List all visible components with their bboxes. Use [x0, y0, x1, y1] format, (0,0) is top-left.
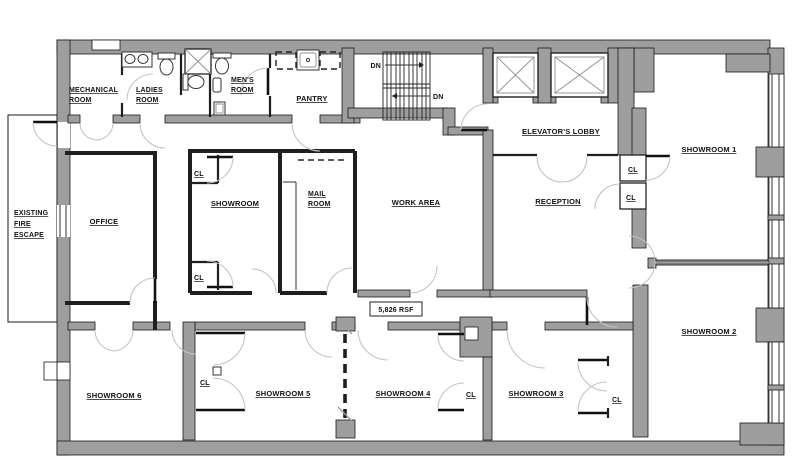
ladies-sink-counter — [122, 52, 152, 67]
workarea-door-arc — [410, 266, 437, 293]
label-mail-1: MAIL — [308, 191, 326, 198]
label-mail-2: ROOM — [308, 201, 331, 208]
label-cl-a: CL — [628, 167, 638, 174]
label-cl-showroom4: CL — [466, 392, 476, 399]
label-showroom6: SHOWROOM 6 — [87, 391, 142, 400]
area-label: 5,826 RSF — [378, 307, 414, 314]
label-cl-showroom-top: CL — [194, 171, 204, 178]
mechanical-door-arc — [80, 123, 97, 140]
label-mechanical-2: ROOM — [69, 97, 92, 104]
label-showroom: SHOWROOM — [211, 199, 259, 208]
label-ladies-1: LADIES — [136, 87, 163, 94]
label-cl-showroom5: CL — [200, 380, 210, 387]
office-door-arc — [130, 278, 155, 303]
closet-b-door-arc — [595, 184, 620, 209]
label-showroom3: SHOWROOM 3 — [509, 389, 564, 398]
closet-a-door-arc — [646, 156, 670, 180]
label-showroom1: SHOWROOM 1 — [682, 145, 737, 154]
label-showroom2: SHOWROOM 2 — [682, 327, 737, 336]
closets — [196, 155, 646, 418]
label-dn-upper: DN — [370, 63, 381, 70]
label-reception: RECEPTION — [535, 197, 581, 206]
label-cl-showroom3: CL — [612, 397, 622, 404]
window-right-upper — [769, 74, 784, 147]
showroom4-door-arc — [358, 330, 388, 360]
stair-arrowhead-upper — [419, 62, 424, 68]
label-dn-lower: DN — [433, 94, 444, 101]
mailroom-counter — [283, 160, 346, 290]
label-mechanical-1: MECHANICAL — [69, 87, 119, 94]
window-left-showroom6 — [44, 362, 70, 380]
pantry-door-arc — [292, 123, 320, 151]
showroom5-door-arc — [305, 330, 332, 357]
elevator-2 — [551, 53, 608, 97]
lobby-door-arc — [461, 104, 487, 130]
label-office: OFFICE — [90, 217, 119, 226]
reception-double-door-arc-right — [562, 157, 587, 182]
window-right-lower — [768, 342, 784, 423]
label-cl-b: CL — [626, 195, 636, 202]
floor-plan: 5,826 RSF MECHANICAL ROOM LADIES ROOM ME… — [0, 0, 807, 463]
window-left-office — [57, 205, 70, 237]
dashed-partition — [338, 320, 352, 421]
janitor-shaft — [185, 49, 211, 74]
stair-arrowhead-lower — [392, 93, 397, 99]
label-work-area: WORK AREA — [392, 198, 441, 207]
fire-escape-enclosure — [8, 115, 57, 322]
label-mens-1: MEN'S — [231, 77, 254, 84]
showroom-door-arc — [252, 269, 276, 293]
mailroom-door-arc — [327, 268, 352, 293]
window-right-middle — [768, 177, 784, 308]
label-fire-escape-1: EXISTING — [14, 210, 49, 217]
label-showroom5: SHOWROOM 5 — [256, 389, 311, 398]
label-elevator-lobby: ELEVATOR'S LOBBY — [522, 127, 600, 136]
showroom1-2-partition — [648, 258, 769, 268]
label-showroom4: SHOWROOM 4 — [376, 389, 432, 398]
label-mens-2: ROOM — [231, 87, 254, 94]
label-fire-escape-2: FIRE — [14, 221, 31, 228]
stair-labels: DN DN — [370, 63, 443, 101]
area-tag: 5,826 RSF — [370, 302, 422, 316]
reception-double-door-arc-left — [537, 157, 562, 182]
showroom3-door-arc — [507, 330, 545, 368]
showroom6-double-door-arc — [95, 330, 114, 351]
ladies-toilet-2 — [183, 74, 204, 90]
top-wall-recess — [92, 40, 120, 50]
mens-urinal — [213, 78, 221, 92]
label-fire-escape-3: ESCAPE — [14, 232, 44, 239]
fire-escape-opening — [58, 122, 70, 148]
mens-toilet — [213, 53, 231, 74]
mens-sink — [214, 102, 225, 115]
ladies-toilet-1 — [158, 53, 175, 75]
floor-plan-page: 5,826 RSF MECHANICAL ROOM LADIES ROOM ME… — [0, 0, 807, 463]
label-ladies-2: ROOM — [136, 97, 159, 104]
elevator-1 — [493, 53, 538, 97]
label-pantry: PANTRY — [296, 94, 327, 103]
label-cl-showroom-bottom: CL — [194, 275, 204, 282]
